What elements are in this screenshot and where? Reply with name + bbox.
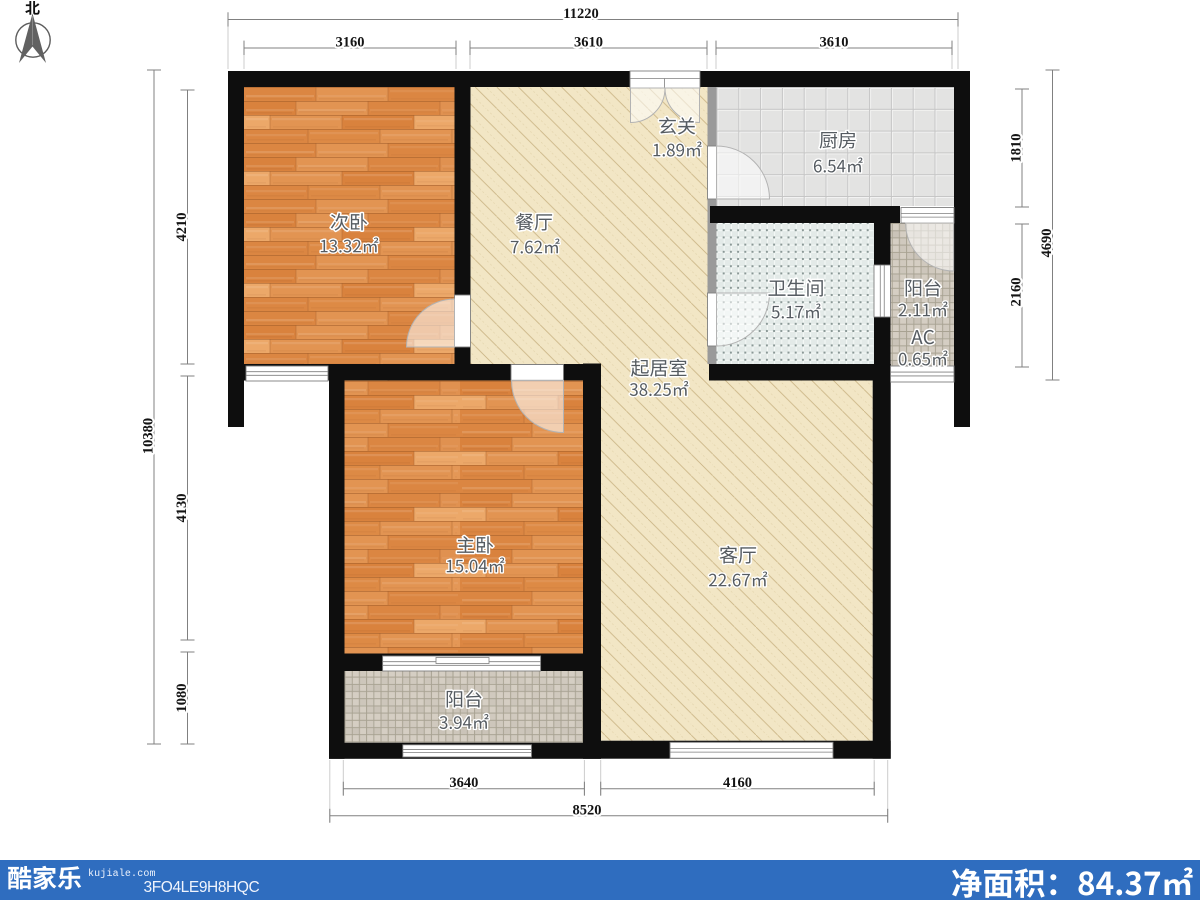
svg-text:3610: 3610 (574, 35, 603, 51)
svg-text:3FO4LE9H8HQC: 3FO4LE9H8HQC (144, 879, 260, 896)
svg-text:2160: 2160 (1009, 278, 1025, 307)
svg-text:11220: 11220 (563, 6, 598, 22)
svg-text:4690: 4690 (1039, 229, 1055, 258)
svg-text:4130: 4130 (174, 494, 190, 523)
svg-text:1080: 1080 (174, 684, 190, 713)
svg-text:1810: 1810 (1009, 134, 1025, 163)
svg-text:10380: 10380 (141, 418, 157, 454)
svg-text:8520: 8520 (573, 802, 602, 818)
svg-text:4210: 4210 (174, 213, 190, 242)
svg-text:3160: 3160 (336, 35, 365, 51)
svg-text:4160: 4160 (723, 775, 752, 791)
svg-text:3610: 3610 (820, 35, 849, 51)
svg-text:3640: 3640 (449, 775, 478, 791)
